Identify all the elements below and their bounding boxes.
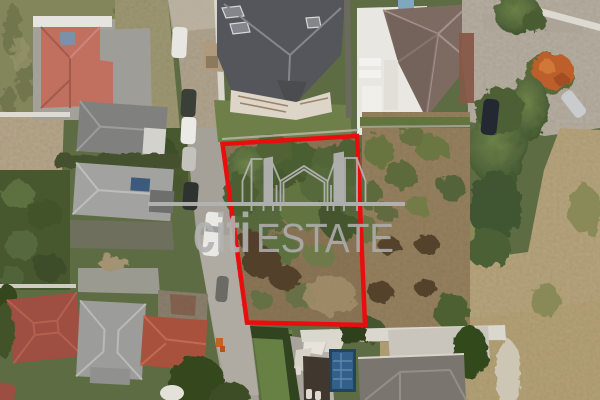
svg-text:citi: citi [193,201,251,264]
svg-text:ESTATE: ESTATE [256,215,394,261]
